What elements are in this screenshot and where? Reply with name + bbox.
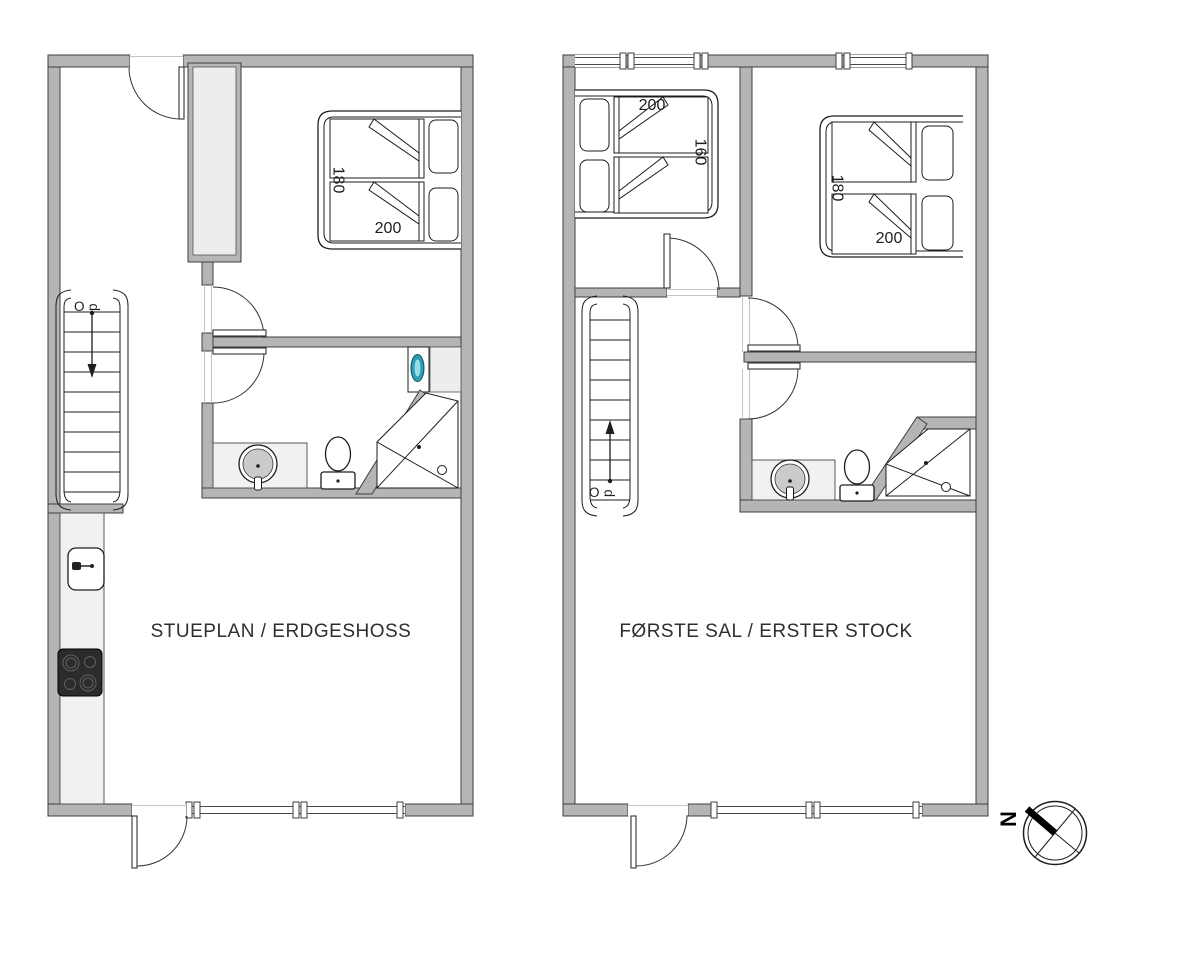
window (186, 802, 405, 818)
bedroom-door-swing (664, 234, 719, 297)
terrace-door-swing (628, 804, 688, 868)
wall (48, 804, 132, 816)
window-mullion (194, 802, 200, 818)
room-title: STUEPLAN / ERDGESHOSS (151, 621, 412, 642)
wall (210, 337, 461, 347)
shower (862, 417, 976, 500)
window-mullion (814, 802, 820, 818)
wall (48, 55, 60, 816)
double-bed: 180 200 (820, 116, 963, 257)
terrace-door-swing (132, 804, 187, 868)
wardrobe (188, 63, 241, 262)
room-title: FØRSTE SAL / ERSTER STOCK (619, 621, 912, 642)
stairs-label: O (74, 299, 85, 314)
staircase: O p (582, 296, 638, 516)
pillow (922, 126, 953, 180)
wall (202, 403, 213, 497)
double-bed: 180 200 (318, 111, 461, 249)
wall (740, 500, 976, 512)
window-mullion (844, 53, 850, 69)
stair-direction-arrow (606, 420, 615, 483)
staircase: O p (56, 290, 128, 510)
toilet (321, 437, 355, 489)
window (711, 802, 922, 818)
double-bed: 200 160 (575, 90, 718, 218)
wall (563, 55, 575, 816)
stair-rail (113, 298, 120, 502)
wall (202, 262, 213, 285)
stair-rail (623, 304, 630, 508)
window-mullion (397, 802, 403, 818)
pillow (429, 120, 458, 173)
faucet (787, 487, 794, 500)
wall (405, 804, 473, 816)
window-mullion (711, 802, 717, 818)
stairs-label: O (589, 485, 600, 500)
ground-floor-plan: O p 180 200 (48, 55, 473, 868)
bed-width-label: 180 (330, 167, 347, 194)
faucet (255, 477, 262, 490)
window-mullion (620, 53, 626, 69)
kitchen-sink (68, 548, 104, 590)
window-mullion (913, 802, 919, 818)
wall (575, 288, 667, 297)
hall-door-swing (743, 297, 801, 352)
door-leaf (748, 345, 800, 351)
bathroom (213, 347, 461, 494)
wall (563, 55, 988, 67)
entrance-door-swing (129, 55, 184, 119)
window-mullion (301, 802, 307, 818)
window-mullion (702, 53, 708, 69)
window-mullion (906, 53, 912, 69)
floorplan-canvas: O p 180 200 (0, 0, 1194, 969)
window-mullion (186, 802, 192, 818)
shelf (430, 347, 461, 392)
door-leaf (132, 816, 137, 868)
washing-machine (408, 347, 461, 392)
washbasin (213, 443, 307, 490)
door-leaf (213, 330, 266, 336)
compass-icon: N (996, 802, 1087, 865)
wall (461, 55, 473, 816)
door-leaf (179, 67, 184, 119)
door-leaf (213, 348, 266, 354)
kitchen (58, 513, 104, 804)
wall (744, 352, 976, 362)
bed-length-label: 200 (375, 220, 402, 237)
wall (48, 55, 130, 67)
door-leaf (631, 816, 636, 868)
shower-drain (438, 466, 447, 475)
bathroom-door-swing (743, 363, 801, 419)
stair-rail (64, 298, 71, 502)
washbasin (752, 460, 835, 500)
bedroom-door-swing (205, 285, 267, 338)
window-mullion (694, 53, 700, 69)
stove (58, 649, 102, 696)
stair-rail (590, 304, 597, 508)
shower-drain (942, 483, 951, 492)
floorplan-page: O p 180 200 (0, 0, 1194, 969)
wall (563, 804, 628, 816)
wall (688, 804, 713, 816)
door-leaf (748, 363, 800, 369)
stairs-label: p (600, 489, 615, 497)
bed-length-label: 200 (876, 230, 903, 247)
bed-width-label: 160 (692, 139, 709, 166)
wall (717, 288, 740, 297)
pillow (580, 160, 609, 212)
stairs-label: p (85, 303, 100, 311)
first-floor-plan: 200 160 180 200 (563, 53, 988, 868)
wall (740, 419, 752, 500)
stair-direction-arrow (88, 311, 97, 378)
shower (356, 390, 458, 494)
wall (922, 804, 988, 816)
window-mullion (293, 802, 299, 818)
window-mullion (628, 53, 634, 69)
pillow (429, 188, 458, 241)
pillow (922, 196, 953, 250)
wall (202, 333, 213, 351)
bed-length-label: 200 (639, 97, 666, 114)
wall (740, 67, 752, 296)
bathroom (752, 417, 976, 501)
toilet (840, 450, 874, 501)
wall (976, 55, 988, 816)
window-mullion (836, 53, 842, 69)
window-mullion (806, 802, 812, 818)
bathroom-door-swing (205, 348, 267, 403)
pillow (580, 99, 609, 151)
bed-width-label: 180 (829, 175, 846, 202)
north-label: N (996, 811, 1021, 827)
door-leaf (664, 234, 670, 288)
